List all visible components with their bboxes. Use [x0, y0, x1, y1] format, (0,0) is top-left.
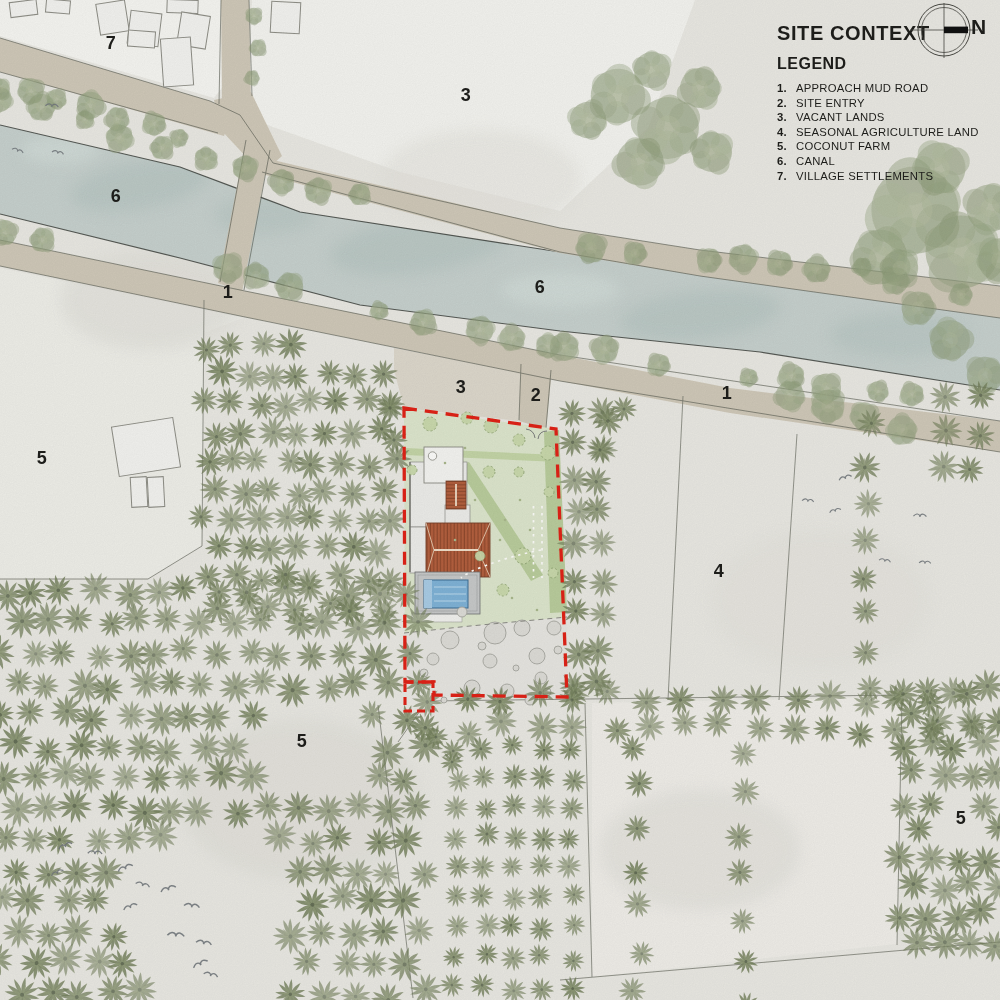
map-label: 5: [37, 448, 47, 469]
map-label: 5: [297, 731, 307, 752]
legend-item-label: CANAL: [796, 154, 835, 169]
legend-item-label: SITE ENTRY: [796, 96, 865, 111]
legend-item-number: 3.: [777, 110, 796, 125]
legend-item-number: 2.: [777, 96, 796, 111]
legend-item-number: 1.: [777, 81, 796, 96]
legend-item: 5.COCONUT FARM: [777, 139, 1000, 154]
legend-item-label: APPROACH MUD ROAD: [796, 81, 928, 96]
site-context-plan: 736611325455 SITE CONTEXT LEGEND 1.APPRO…: [0, 0, 1000, 1000]
legend-list: 1.APPROACH MUD ROAD2.SITE ENTRY3.VACANT …: [777, 81, 1000, 183]
legend-item: 7.VILLAGE SETTLEMENTS: [777, 169, 1000, 184]
legend-item-number: 7.: [777, 169, 796, 184]
map-label: 3: [461, 85, 471, 106]
legend-item-label: SEASONAL AGRICULTURE LAND: [796, 125, 979, 140]
map-label: 4: [714, 561, 724, 582]
north-needle: [944, 27, 968, 34]
legend-item-label: VACANT LANDS: [796, 110, 885, 125]
map-label: 6: [111, 186, 121, 207]
legend-item-number: 4.: [777, 125, 796, 140]
legend-item-label: VILLAGE SETTLEMENTS: [796, 169, 933, 184]
map-label: 7: [106, 33, 116, 54]
legend-item: 4.SEASONAL AGRICULTURE LAND: [777, 125, 1000, 140]
legend-item: 3.VACANT LANDS: [777, 110, 1000, 125]
legend-item: 1.APPROACH MUD ROAD: [777, 81, 1000, 96]
legend-item: 2.SITE ENTRY: [777, 96, 1000, 111]
map-label: 1: [722, 383, 732, 404]
north-label: N: [971, 15, 986, 39]
map-label: 3: [456, 377, 466, 398]
legend-item-label: COCONUT FARM: [796, 139, 890, 154]
north-arrow: N: [905, 2, 1000, 62]
map-label: 2: [531, 385, 541, 406]
legend-item-number: 5.: [777, 139, 796, 154]
legend-item: 6.CANAL: [777, 154, 1000, 169]
map-label: 6: [535, 277, 545, 298]
map-label: 5: [956, 808, 966, 829]
map-label: 1: [223, 282, 233, 303]
legend-item-number: 6.: [777, 154, 796, 169]
legend-heading: LEGEND: [777, 55, 847, 73]
